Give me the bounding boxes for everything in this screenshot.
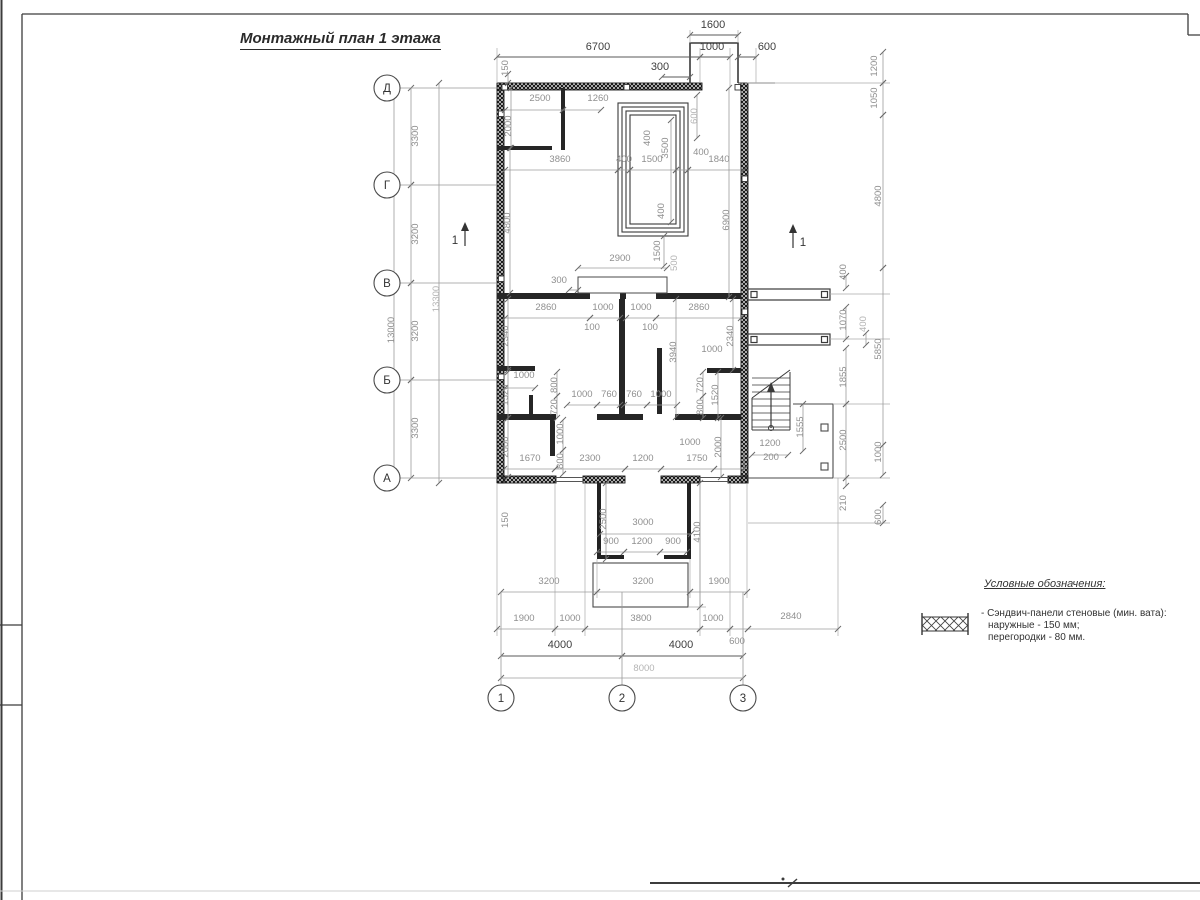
dim-label: 3000	[632, 517, 653, 528]
dim-label: 3500	[660, 137, 671, 158]
dim-label: 13300	[431, 286, 442, 312]
col-axis-label: 1	[498, 693, 504, 705]
dim-label: 1900	[513, 613, 534, 624]
dim-label: 1000	[630, 302, 651, 313]
floor-plan-canvas: 1600670010006003001502500126020006003860…	[0, 0, 1200, 900]
dim-label: 1200	[759, 438, 780, 449]
dim-label: 200	[763, 452, 779, 463]
dim-label: 150	[500, 60, 511, 76]
dim-label: 900	[665, 536, 681, 547]
dim-label: 3300	[410, 125, 421, 146]
legend-line-2: наружные - 150 мм;	[981, 620, 1167, 632]
dim-label: 600	[758, 41, 776, 53]
dim-label: 1070	[838, 309, 849, 330]
dim-label: 2000	[503, 115, 514, 136]
dim-label: 2340	[500, 325, 511, 346]
dim-label: 1000	[701, 344, 722, 355]
dim-label: 720	[695, 377, 706, 393]
col-axis-label: 3	[740, 693, 746, 705]
dim-label: 4100	[692, 521, 703, 542]
dim-label: 2000	[500, 436, 511, 457]
dim-label: 2000	[713, 436, 724, 457]
dim-label: 1000	[679, 437, 700, 448]
dim-label: 6900	[721, 209, 732, 230]
dim-label: 3200	[410, 223, 421, 244]
dim-label: 2500	[838, 429, 849, 450]
dim-label: 1520	[500, 384, 511, 405]
dim-label: 1000	[650, 389, 671, 400]
dim-label: 1000	[592, 302, 613, 313]
col-axis-label: 2	[619, 693, 625, 705]
dim-label: 2500	[529, 93, 550, 104]
dim-label: 1500	[652, 240, 663, 261]
dim-label: 600	[729, 636, 745, 647]
dim-label: 600	[689, 108, 700, 124]
dim-label: 13000	[386, 317, 397, 343]
dim-label: 1260	[587, 93, 608, 104]
dim-label: 210	[838, 495, 849, 511]
dim-label: 100	[642, 322, 658, 333]
dim-label: 300	[651, 61, 669, 73]
legend-line-1: - Сэндвич-панели стеновые (мин. вата):	[981, 608, 1167, 620]
dim-label: 400	[656, 203, 667, 219]
row-axis-label: Д	[383, 83, 391, 95]
dim-label: 2300	[579, 453, 600, 464]
dim-label: 6700	[586, 41, 610, 53]
dim-label: 4800	[873, 185, 884, 206]
dim-label: 760	[601, 389, 617, 400]
drawing-sheet: 1600670010006003001502500126020006003860…	[0, 0, 1200, 900]
legend-item: - Сэндвич-панели стеновые (мин. вата): н…	[981, 608, 1167, 644]
section-arrowhead	[789, 224, 797, 233]
dim-label: 3860	[549, 154, 570, 165]
legend-line-3: перегородки - 80 мм.	[981, 632, 1167, 644]
dim-label: 4000	[548, 639, 572, 651]
dim-label: 1600	[701, 19, 725, 31]
dim-label: 400	[616, 154, 632, 165]
sheet-frame	[0, 0, 1200, 900]
page-title: Монтажный план 1 этажа	[240, 30, 441, 50]
dim-label: 300	[551, 275, 567, 286]
dim-label: 3200	[410, 320, 421, 341]
dim-label: 3200	[538, 576, 559, 587]
row-axis-label: В	[383, 278, 391, 290]
dim-label: 5850	[873, 338, 884, 359]
dim-label: 1750	[686, 453, 707, 464]
dim-label: 2840	[780, 611, 801, 622]
row-axis-label: Г	[384, 180, 391, 192]
row-axis-label: А	[383, 473, 391, 485]
dim-label: 1855	[838, 366, 849, 387]
dim-label: 1000	[559, 613, 580, 624]
dim-label: 2340	[725, 325, 736, 346]
dim-label: 1000	[555, 423, 566, 444]
dim-label: 1200	[869, 55, 880, 76]
dim-label: 400	[642, 130, 653, 146]
dim-label: 800	[695, 399, 706, 415]
dim-label: 800	[549, 377, 560, 393]
dim-label: 2860	[688, 302, 709, 313]
dim-label: 2500	[598, 508, 609, 529]
dim-label: 600	[873, 509, 884, 525]
dim-label: 100	[584, 322, 600, 333]
dim-label: 1670	[519, 453, 540, 464]
dim-label: 3200	[632, 576, 653, 587]
dim-label: 1000	[702, 613, 723, 624]
dim-label: 1000	[700, 41, 724, 53]
dim-label: 1000	[513, 370, 534, 381]
dim-label: 3300	[410, 417, 421, 438]
dim-label: 3800	[630, 613, 651, 624]
dim-label: 500	[669, 255, 680, 271]
dim-label: 400	[858, 316, 869, 332]
builtin-cabinet	[578, 277, 667, 293]
dim-label: 1000	[873, 441, 884, 462]
external-stairs	[752, 370, 790, 431]
dim-label: 8000	[633, 663, 654, 674]
dimension-layer: 1600670010006003001502500126020006003860…	[386, 19, 886, 681]
dim-label: 4800	[502, 212, 513, 233]
dim-label: 1840	[708, 154, 729, 165]
dim-label: 2860	[535, 302, 556, 313]
dim-label: 900	[603, 536, 619, 547]
dim-label: 720	[549, 399, 560, 415]
canopy-beams	[748, 289, 830, 345]
dim-label: 1555	[795, 416, 806, 437]
sandwich-panel-hatch-icon	[922, 613, 968, 635]
row-axis-label: Б	[383, 375, 391, 387]
shaft-unit	[618, 103, 688, 236]
dim-label: 400	[838, 264, 849, 280]
legend-title: Условные обозначения:	[984, 578, 1105, 590]
dim-label: 760	[626, 389, 642, 400]
dim-label: 1200	[632, 453, 653, 464]
dim-label: 4000	[669, 639, 693, 651]
dim-label: 800	[555, 453, 566, 469]
dim-label: 1200	[631, 536, 652, 547]
section-label: 1	[452, 235, 458, 247]
dim-label: 1050	[869, 87, 880, 108]
dim-label: 2900	[609, 253, 630, 264]
dim-label: 150	[500, 512, 511, 528]
dim-label: 3940	[668, 341, 679, 362]
section-label: 1	[800, 237, 806, 249]
dim-label: 1520	[710, 384, 721, 405]
dim-label: 1900	[708, 576, 729, 587]
dim-label: 1000	[571, 389, 592, 400]
section-arrowhead	[461, 222, 469, 231]
dim-label: 400	[693, 147, 709, 158]
